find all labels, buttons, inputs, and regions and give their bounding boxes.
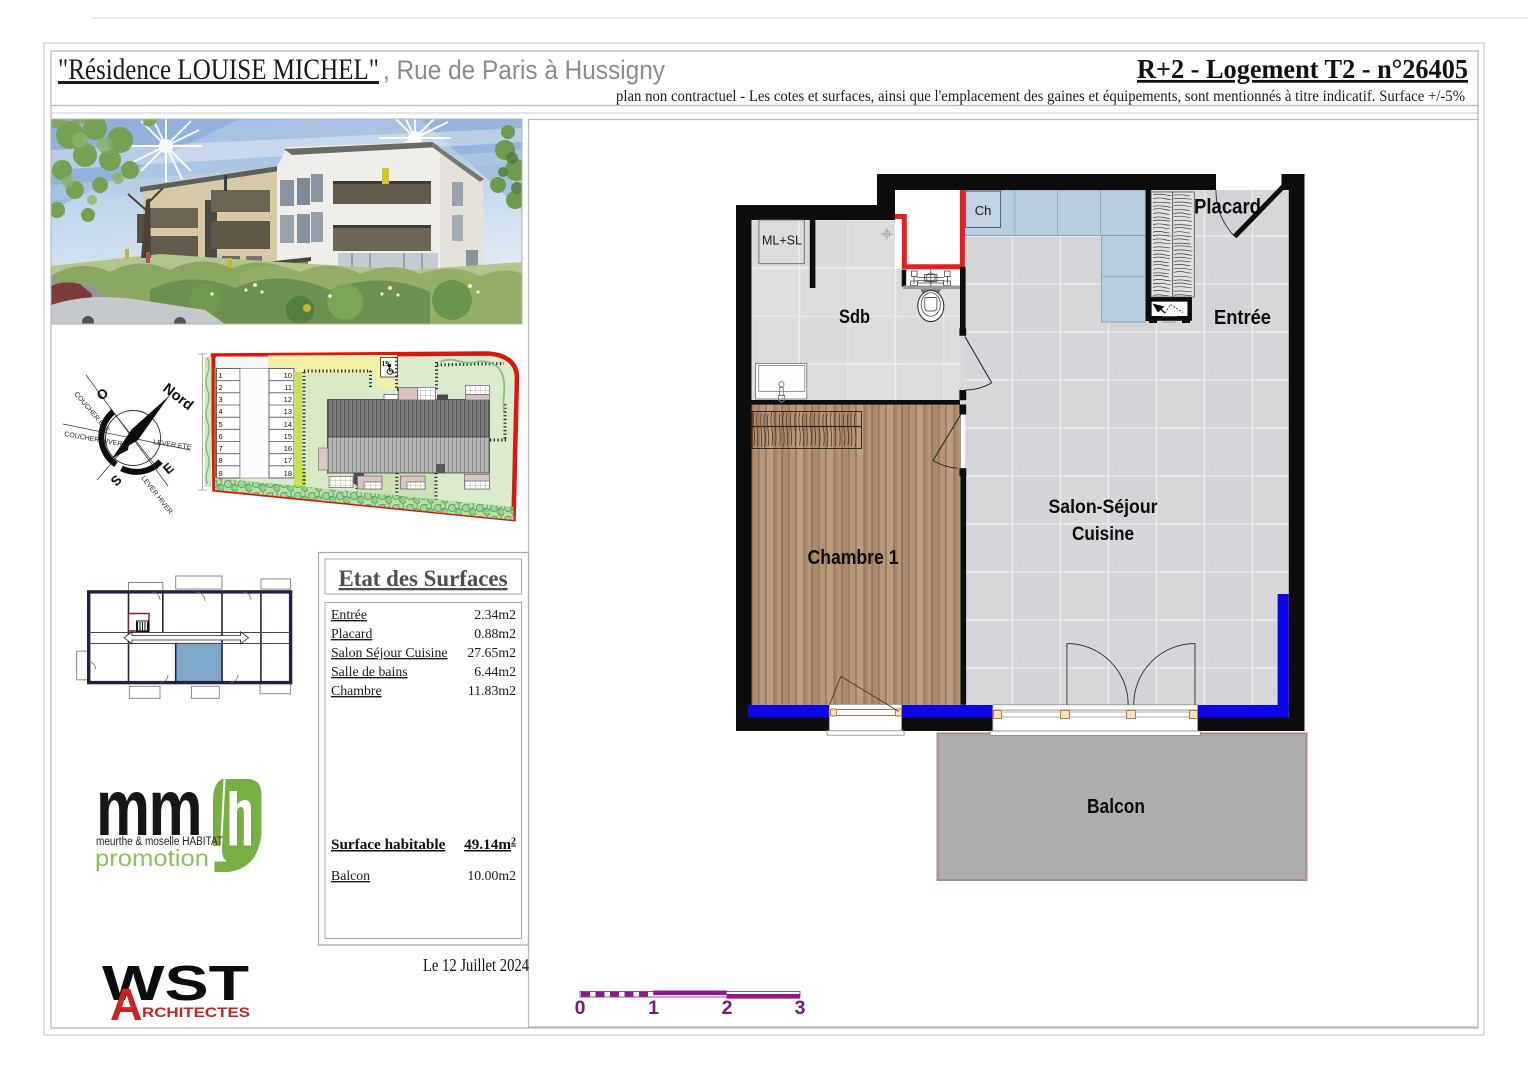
svg-text:RCHITECTES: RCHITECTES bbox=[142, 1005, 250, 1020]
svg-text:15: 15 bbox=[284, 432, 292, 441]
svg-text:3: 3 bbox=[795, 997, 806, 1019]
svg-text:2.34m2: 2.34m2 bbox=[474, 607, 516, 622]
svg-text:10: 10 bbox=[284, 371, 292, 380]
svg-text:Balcon: Balcon bbox=[331, 868, 370, 883]
svg-text:Entrée: Entrée bbox=[331, 607, 367, 622]
svg-text:6: 6 bbox=[219, 432, 223, 441]
svg-text:16: 16 bbox=[284, 444, 292, 453]
svg-text:0: 0 bbox=[575, 997, 586, 1019]
svg-text:Ch: Ch bbox=[975, 203, 992, 218]
svg-text:plan non contractuel - Les cot: plan non contractuel - Les cotes et surf… bbox=[616, 88, 1465, 105]
svg-text:Balcon: Balcon bbox=[1087, 796, 1145, 818]
svg-text:18: 18 bbox=[284, 469, 292, 478]
svg-text:Chambre 1: Chambre 1 bbox=[808, 547, 899, 569]
svg-text:11: 11 bbox=[284, 383, 292, 392]
svg-text:6.44m2: 6.44m2 bbox=[474, 664, 516, 679]
svg-text:1: 1 bbox=[648, 997, 659, 1019]
svg-text:Sdb: Sdb bbox=[839, 307, 870, 328]
svg-text:19: 19 bbox=[382, 359, 390, 368]
svg-text:10.00m2: 10.00m2 bbox=[467, 868, 516, 883]
svg-text:14: 14 bbox=[284, 420, 292, 429]
svg-text:Entrée: Entrée bbox=[1214, 307, 1271, 329]
svg-text:3: 3 bbox=[219, 395, 223, 404]
svg-text:Placard: Placard bbox=[1194, 196, 1261, 219]
svg-text:A: A bbox=[110, 979, 143, 1030]
svg-text:11.83m2: 11.83m2 bbox=[468, 683, 516, 698]
svg-text:Etat des Surfaces: Etat des Surfaces bbox=[339, 566, 508, 591]
svg-text:Placard: Placard bbox=[331, 626, 372, 641]
svg-text:Salon-Séjour: Salon-Séjour bbox=[1049, 497, 1159, 518]
svg-text:, Rue de Paris à Hussigny: , Rue de Paris à Hussigny bbox=[383, 55, 665, 85]
svg-text:Surface habitable: Surface habitable bbox=[331, 836, 446, 853]
svg-text:2: 2 bbox=[219, 383, 223, 392]
svg-text:R+2 - Logement T2 - n°26405: R+2 - Logement T2 - n°26405 bbox=[1137, 54, 1468, 84]
svg-text:ML+SL: ML+SL bbox=[762, 234, 802, 248]
svg-text:7: 7 bbox=[219, 444, 223, 453]
svg-text:49.14m2: 49.14m2 bbox=[464, 836, 516, 853]
svg-text:Salle de bains: Salle de bains bbox=[331, 664, 408, 679]
svg-text:13: 13 bbox=[284, 407, 292, 416]
svg-text:4: 4 bbox=[219, 407, 223, 416]
svg-text:5: 5 bbox=[219, 420, 223, 429]
svg-text:1: 1 bbox=[219, 371, 223, 380]
svg-text:Le 12 Juillet 2024: Le 12 Juillet 2024 bbox=[423, 955, 529, 975]
svg-text:27.65m2: 27.65m2 bbox=[467, 645, 516, 660]
svg-text:2: 2 bbox=[722, 997, 733, 1019]
svg-text:8: 8 bbox=[219, 456, 223, 465]
svg-text:9: 9 bbox=[219, 469, 223, 478]
svg-text:Chambre: Chambre bbox=[331, 683, 382, 698]
svg-text:17: 17 bbox=[284, 456, 292, 465]
svg-text:0.88m2: 0.88m2 bbox=[474, 626, 516, 641]
svg-text:"Résidence LOUISE MICHEL": "Résidence LOUISE MICHEL" bbox=[58, 53, 379, 86]
svg-text:promotion: promotion bbox=[95, 845, 209, 871]
svg-text:12: 12 bbox=[284, 395, 292, 404]
svg-text:Cuisine: Cuisine bbox=[1072, 524, 1134, 545]
svg-text:Salon Séjour Cuisine: Salon Séjour Cuisine bbox=[331, 645, 448, 660]
